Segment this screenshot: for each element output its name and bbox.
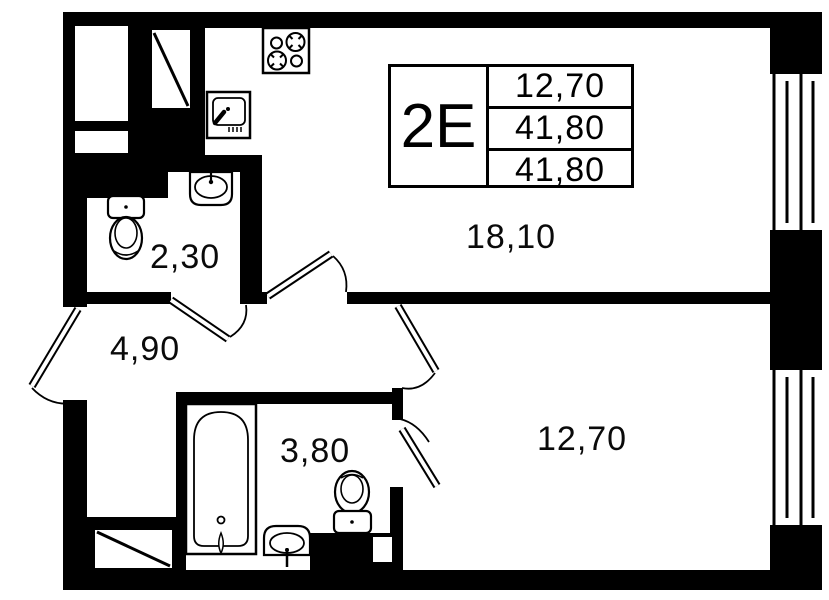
floor-plan: 18,10 2,30 4,90 3,80 12,70 2E 12,70 41,8… xyxy=(0,0,829,600)
door-living xyxy=(268,254,346,296)
door-wc xyxy=(171,300,246,339)
window-bedroom xyxy=(774,370,813,525)
room-label-hall: 4,90 xyxy=(110,330,180,369)
room-label-wc: 2,30 xyxy=(150,238,220,277)
kitchen-sink xyxy=(207,92,250,138)
unit-area-row-2: 41,80 xyxy=(489,109,631,151)
vent-shaft-diagonal-top xyxy=(154,33,188,106)
wc-washbasin xyxy=(190,170,232,205)
door-entry xyxy=(32,309,78,404)
room-label-living: 18,10 xyxy=(466,218,556,257)
door-bathroom xyxy=(400,419,437,486)
unit-info-box: 2E 12,70 41,80 41,80 xyxy=(388,64,634,188)
room-label-bathroom: 3,80 xyxy=(280,432,350,471)
window-living xyxy=(774,74,813,230)
vent-shaft-diagonal-bottom xyxy=(97,532,170,566)
door-bedroom xyxy=(398,306,436,389)
unit-area-row-1: 12,70 xyxy=(489,67,631,109)
bathroom-toilet xyxy=(334,471,371,533)
room-label-bedroom: 12,70 xyxy=(537,420,627,459)
wc-toilet xyxy=(108,196,144,259)
unit-type-label: 2E xyxy=(391,67,489,185)
bathtub xyxy=(186,404,256,554)
stove xyxy=(263,28,309,73)
bathroom-washbasin xyxy=(264,526,310,567)
unit-area-row-3: 41,80 xyxy=(489,151,631,190)
